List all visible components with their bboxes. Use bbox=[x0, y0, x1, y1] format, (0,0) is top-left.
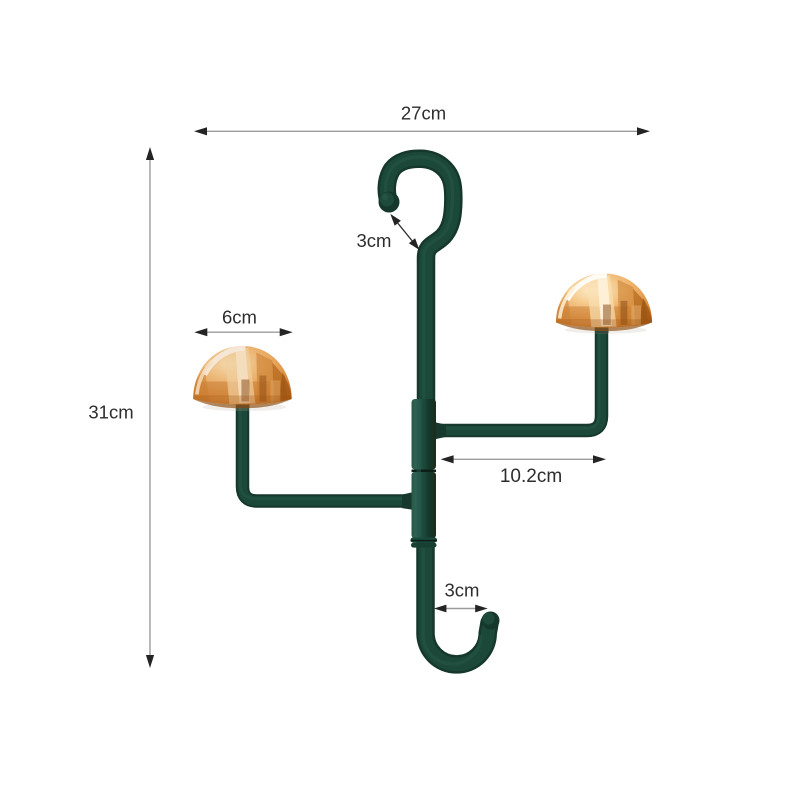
svg-text:3cm: 3cm bbox=[357, 230, 392, 251]
svg-text:10.2cm: 10.2cm bbox=[500, 466, 562, 487]
svg-text:6cm: 6cm bbox=[222, 307, 257, 328]
svg-text:27cm: 27cm bbox=[401, 103, 446, 124]
svg-text:31cm: 31cm bbox=[88, 402, 133, 423]
svg-text:3cm: 3cm bbox=[445, 580, 480, 601]
